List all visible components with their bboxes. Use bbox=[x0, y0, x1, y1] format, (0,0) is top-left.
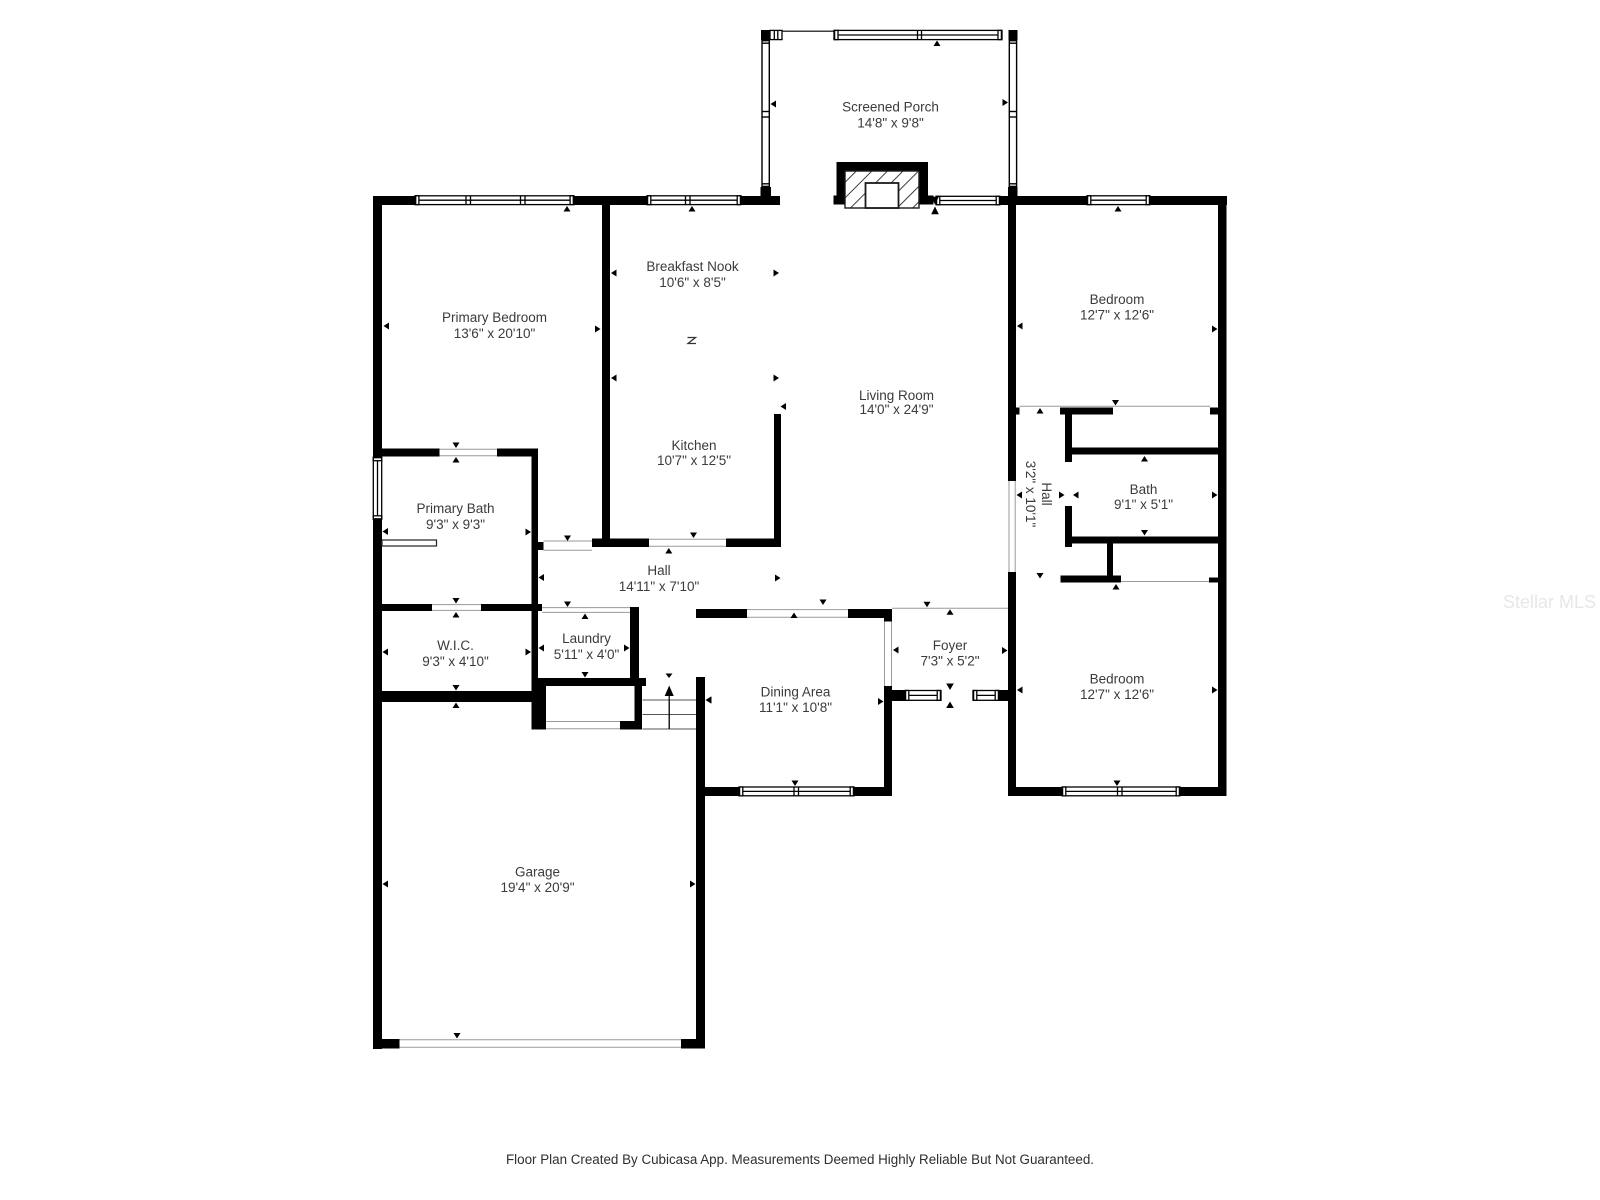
svg-text:Bedroom: Bedroom bbox=[1090, 672, 1145, 687]
svg-text:Floor Plan Created By Cubicasa: Floor Plan Created By Cubicasa App. Meas… bbox=[506, 1152, 1094, 1167]
svg-text:Stellar MLS: Stellar MLS bbox=[1503, 592, 1596, 612]
svg-text:Bedroom: Bedroom bbox=[1090, 292, 1145, 307]
svg-text:Breakfast Nook: Breakfast Nook bbox=[646, 259, 739, 274]
svg-text:13'6" x 20'10": 13'6" x 20'10" bbox=[454, 326, 536, 341]
svg-text:Living Room: Living Room bbox=[859, 388, 934, 403]
svg-text:Primary Bath: Primary Bath bbox=[416, 501, 494, 516]
svg-text:14'0" x 24'9": 14'0" x 24'9" bbox=[859, 402, 933, 417]
svg-text:Laundry: Laundry bbox=[562, 631, 611, 646]
svg-text:14'11" x 7'10": 14'11" x 7'10" bbox=[619, 579, 700, 594]
svg-text:19'4" x 20'9": 19'4" x 20'9" bbox=[500, 880, 574, 895]
svg-text:10'7" x 12'5": 10'7" x 12'5" bbox=[657, 453, 731, 468]
svg-text:Hall: Hall bbox=[647, 563, 670, 578]
svg-text:14'8" x 9'8": 14'8" x 9'8" bbox=[857, 116, 924, 131]
svg-text:7'3" x 5'2": 7'3" x 5'2" bbox=[920, 654, 979, 669]
svg-text:12'7" x 12'6": 12'7" x 12'6" bbox=[1080, 308, 1154, 323]
svg-text:Primary Bedroom: Primary Bedroom bbox=[442, 310, 547, 325]
svg-text:Dining Area: Dining Area bbox=[761, 685, 831, 700]
svg-text:9'3" x 4'10": 9'3" x 4'10" bbox=[422, 654, 489, 669]
svg-text:Hall: Hall bbox=[1039, 482, 1054, 505]
svg-text:Screened Porch: Screened Porch bbox=[842, 100, 939, 115]
svg-text:9'3" x 9'3": 9'3" x 9'3" bbox=[426, 517, 485, 532]
svg-text:11'1" x 10'8": 11'1" x 10'8" bbox=[759, 700, 832, 715]
svg-text:12'7" x 12'6": 12'7" x 12'6" bbox=[1080, 687, 1154, 702]
svg-text:3'2" x 10'1": 3'2" x 10'1" bbox=[1023, 461, 1038, 528]
svg-text:Kitchen: Kitchen bbox=[671, 438, 716, 453]
svg-text:W.I.C.: W.I.C. bbox=[437, 638, 474, 653]
svg-text:5'11" x 4'0": 5'11" x 4'0" bbox=[554, 647, 620, 662]
svg-text:Bath: Bath bbox=[1130, 482, 1158, 497]
svg-text:10'6" x 8'5": 10'6" x 8'5" bbox=[659, 275, 726, 290]
svg-text:Garage: Garage bbox=[515, 865, 560, 880]
svg-text:Foyer: Foyer bbox=[933, 638, 968, 653]
svg-text:9'1" x 5'1": 9'1" x 5'1" bbox=[1114, 497, 1173, 512]
